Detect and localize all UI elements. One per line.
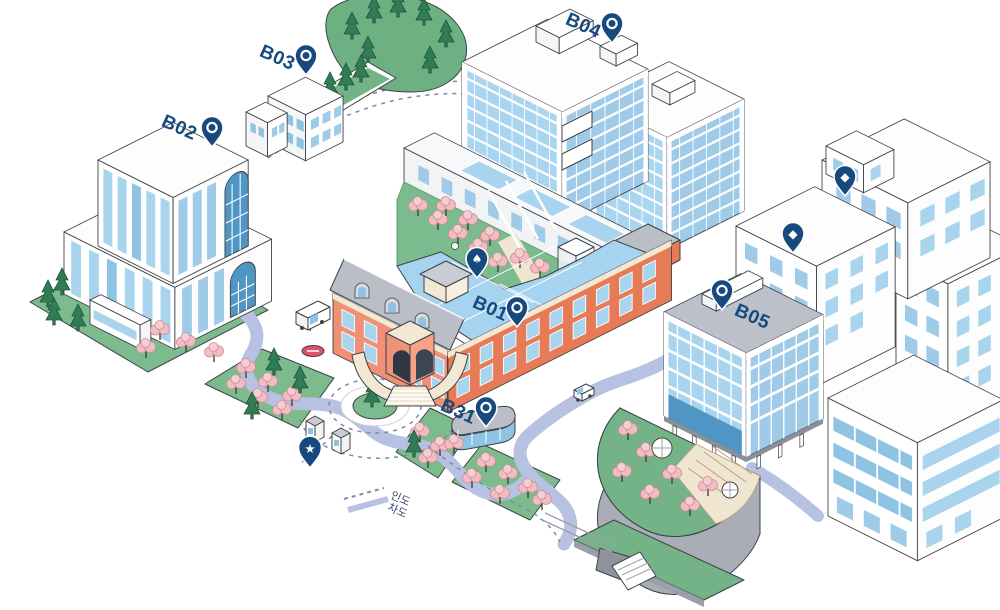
svg-text:◆: ◆ <box>840 170 850 184</box>
label-b03[interactable]: B03 <box>256 41 298 75</box>
svg-text:♠: ♠ <box>472 252 483 266</box>
campus-map: B02 B03 B04 ♠ B01 B05 B31 ◆ ◆ ★ 인도 차도 <box>0 0 1000 610</box>
svg-text:★: ★ <box>304 441 315 456</box>
pin-b03[interactable] <box>295 45 317 76</box>
pin-star[interactable]: ★ <box>298 436 321 468</box>
legend-sidewalk-line <box>344 488 384 499</box>
svg-text:◆: ◆ <box>788 227 798 241</box>
shuttle-bus <box>296 301 330 330</box>
campus-map-canvas: B02 B03 B04 ♠ B01 B05 B31 ◆ ◆ ★ 인도 차도 <box>0 0 1000 610</box>
map-legend: 인도 차도 <box>344 488 412 521</box>
building-b03[interactable] <box>246 77 343 161</box>
bus-stop-marker <box>302 346 324 357</box>
crosswalk <box>280 327 302 342</box>
building-b02[interactable] <box>64 122 271 349</box>
building-band-block[interactable] <box>828 355 1000 561</box>
legend-roadway-line <box>348 499 388 510</box>
